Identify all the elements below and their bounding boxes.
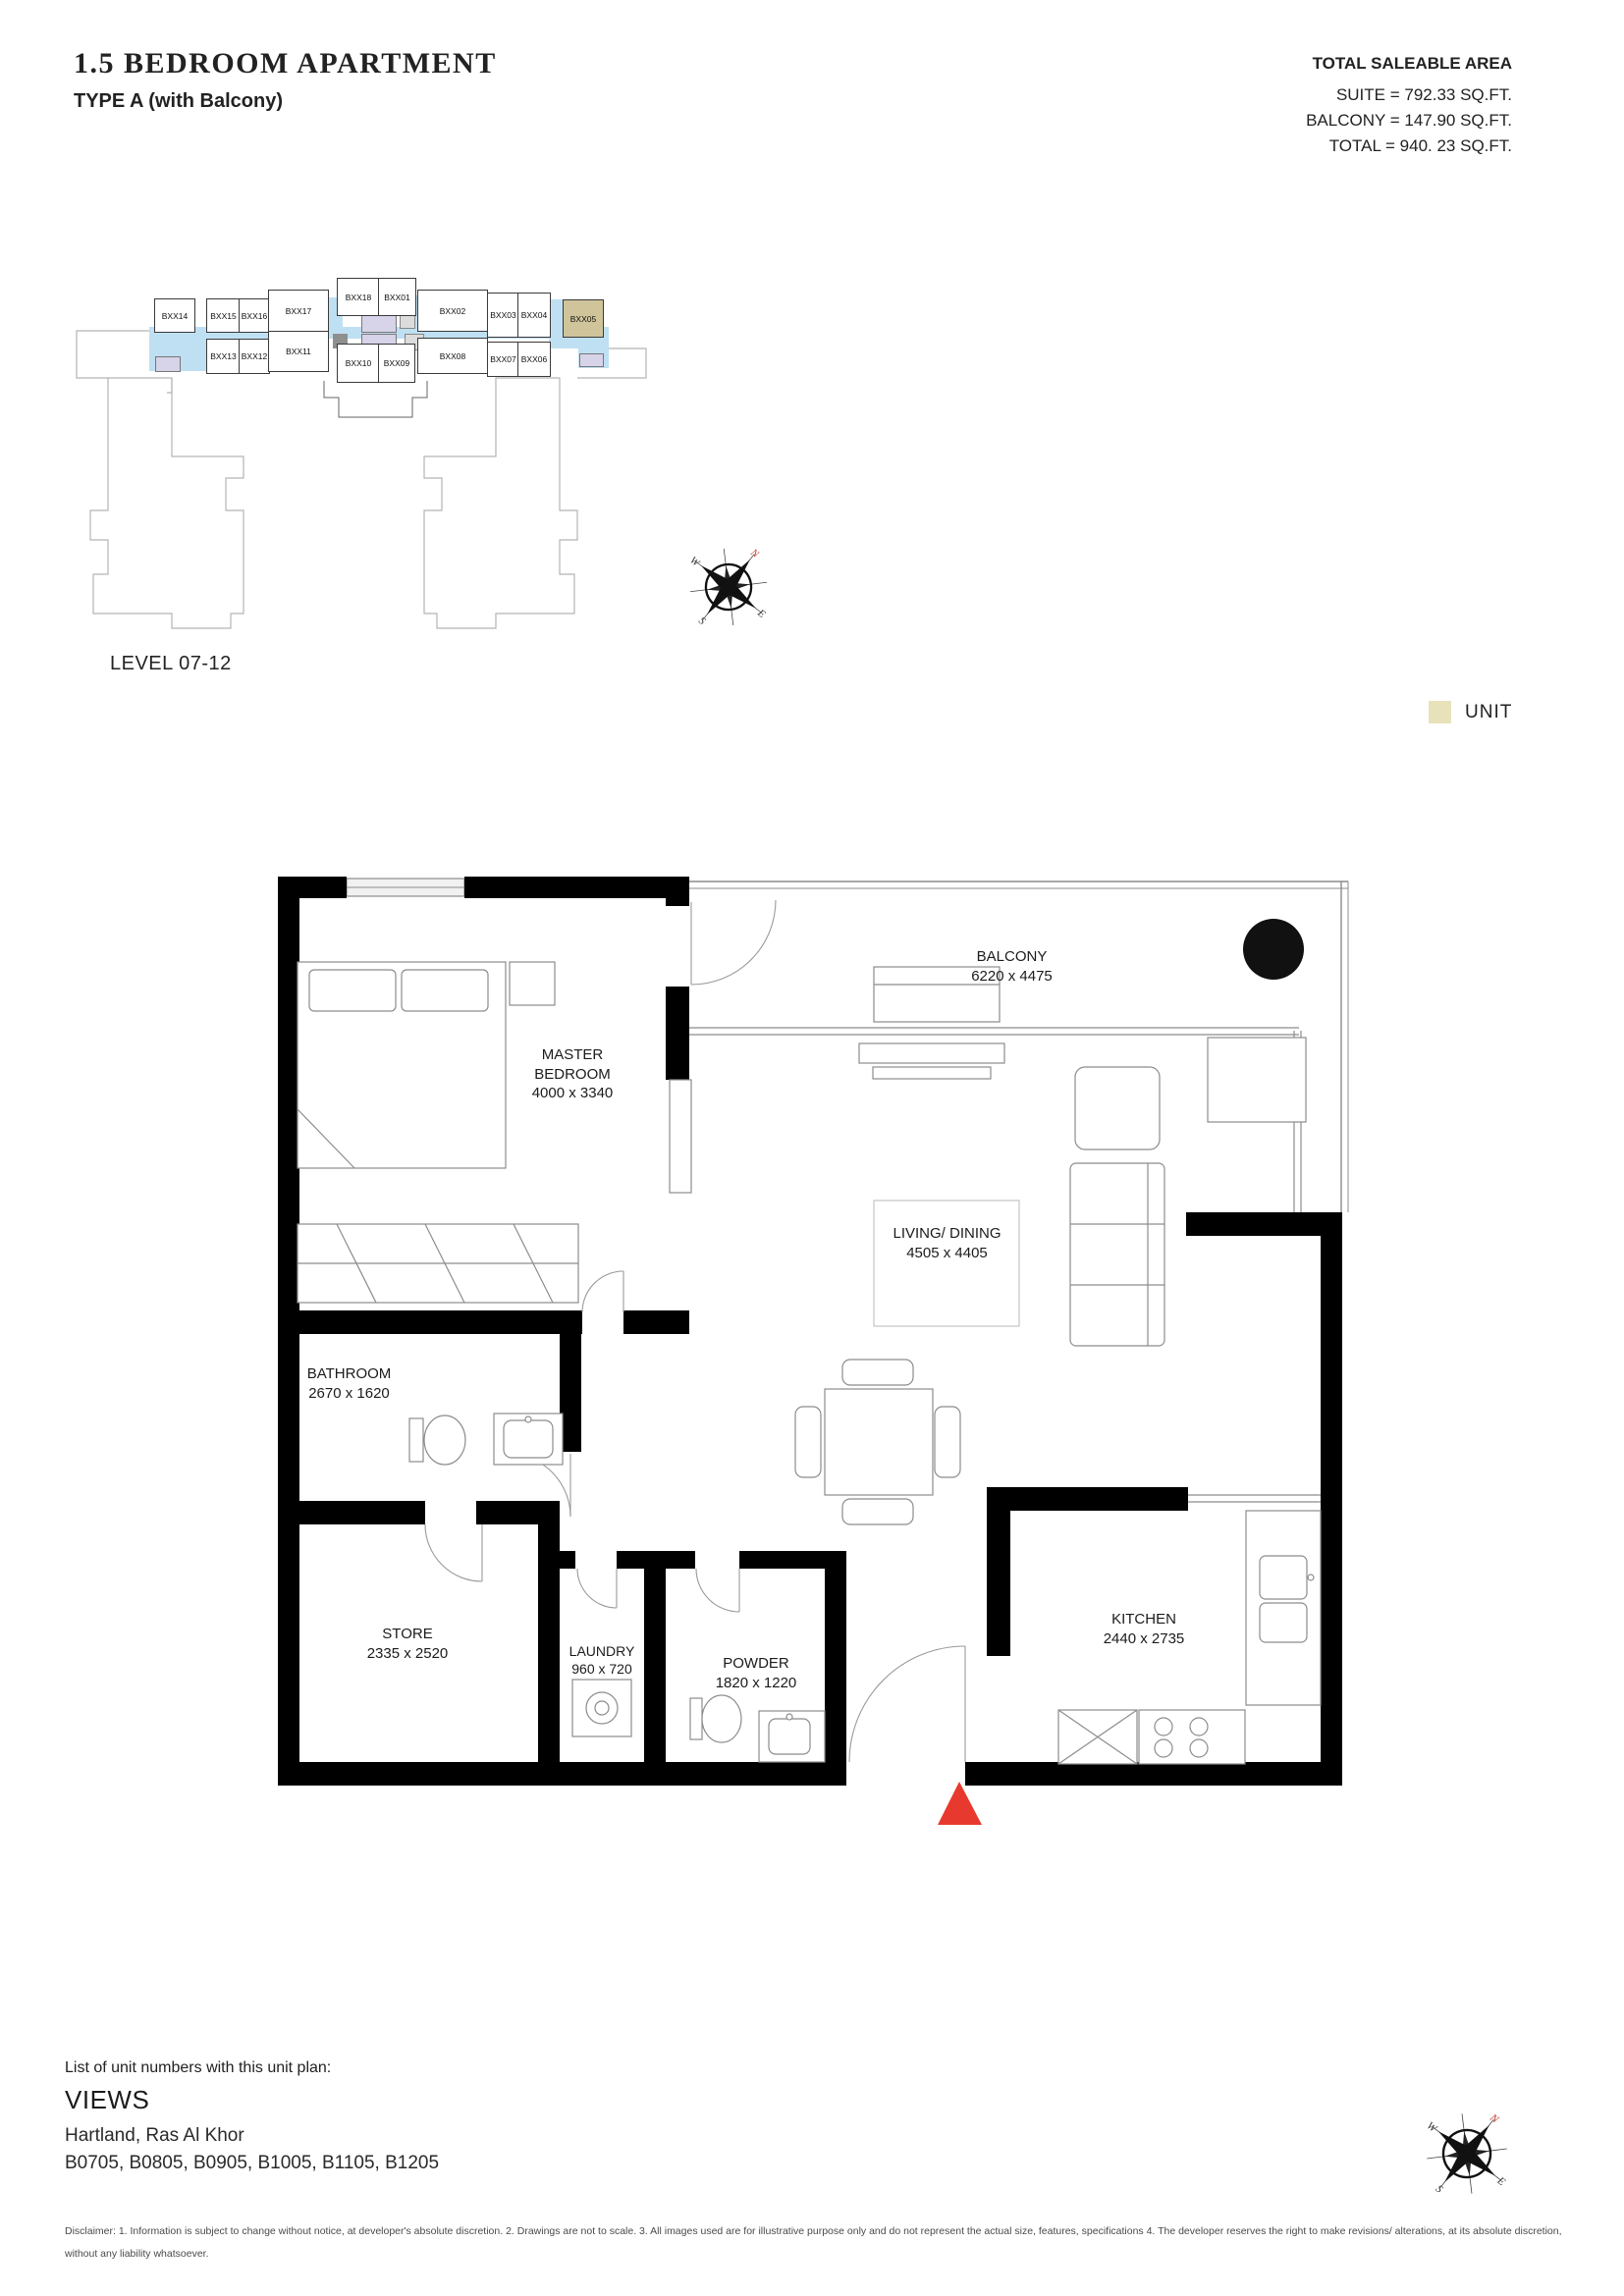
keyplan-unit: BXX14 (154, 298, 195, 333)
room-label-store: STORE2335 x 2520 (349, 1625, 466, 1663)
room-label-master: MASTER BEDROOM4000 x 3340 (509, 1045, 636, 1103)
tv-unit (859, 1043, 1004, 1079)
svg-text:S: S (696, 615, 708, 627)
keyplan-unit: BXX16 (239, 298, 270, 333)
armchair (1075, 1067, 1160, 1149)
room-label-kitchen: KITCHEN2440 x 2735 (1085, 1610, 1203, 1648)
area-balcony: BALCONY = 147.90 SQ.FT. (1306, 108, 1512, 133)
rug (874, 1201, 1019, 1326)
entrance-marker (938, 1782, 982, 1825)
key-plan: BXX18 BXX01 BXX14 BXX15 BXX16 BXX17 BXX0… (74, 275, 648, 667)
page-title: 1.5 BEDROOM APARTMENT (74, 47, 497, 80)
elevator-core (155, 356, 181, 372)
sofa (1070, 1163, 1164, 1346)
bathroom-sink (494, 1414, 563, 1465)
unit-legend: UNIT (1429, 701, 1512, 723)
level-label: LEVEL 07-12 (110, 653, 232, 675)
svg-text:W: W (1425, 2120, 1439, 2136)
svg-text:E: E (755, 608, 768, 621)
fridge (1058, 1710, 1137, 1764)
room-label-powder: POWDER1820 x 1220 (702, 1654, 810, 1692)
toilet (409, 1415, 465, 1465)
room-label-balcony: BALCONY6220 x 4475 (946, 947, 1078, 986)
room-label-living: LIVING/ DINING4505 x 4405 (881, 1224, 1013, 1262)
dining-table (795, 1360, 960, 1524)
balcony-table (1243, 919, 1304, 980)
stove (1139, 1710, 1245, 1764)
wall-niche (670, 1080, 691, 1193)
room-label-laundry: LAUNDRY960 x 720 (560, 1642, 644, 1678)
keyplan-unit: BXX09 (378, 344, 415, 383)
saleable-area-block: TOTAL SALEABLE AREA SUITE = 792.33 SQ.FT… (1306, 51, 1512, 159)
svg-text:N: N (1487, 2111, 1500, 2126)
svg-text:S: S (1434, 2183, 1445, 2196)
compass-icon-footer: N E S W (1418, 2105, 1516, 2203)
corridor-branch (549, 299, 563, 337)
floor-plan: MASTER BEDROOM4000 x 3340 BALCONY6220 x … (278, 869, 1358, 1831)
keyplan-unit: BXX11 (268, 331, 329, 372)
unit-list-intro: List of unit numbers with this unit plan… (65, 2059, 331, 2077)
keyplan-unit: BXX13 (206, 339, 241, 374)
keyplan-unit: BXX07 (487, 342, 519, 377)
page-header: 1.5 BEDROOM APARTMENT TYPE A (with Balco… (74, 47, 497, 113)
keyplan-unit: BXX15 (206, 298, 241, 333)
keyplan-unit: BXX02 (417, 290, 488, 332)
floor-plan-drawing (278, 869, 1358, 1831)
unit-legend-swatch (1429, 701, 1451, 723)
compass-icon: N E S W (681, 540, 776, 634)
disclaimer: Disclaimer: 1. Information is subject to… (65, 2220, 1565, 2266)
keyplan-unit: BXX03 (487, 293, 519, 338)
room-label-bathroom: BATHROOM2670 x 1620 (288, 1364, 410, 1403)
area-heading: TOTAL SALEABLE AREA (1306, 51, 1512, 77)
project-location: Hartland, Ras Al Khor (65, 2125, 244, 2147)
keyplan-unit: BXX08 (417, 338, 488, 374)
keyplan-unit: BXX04 (517, 293, 551, 338)
keyplan-unit: BXX17 (268, 290, 329, 333)
keyplan-unit: BXX12 (239, 339, 270, 374)
unit-numbers: B0705, B0805, B0905, B1005, B1105, B1205 (65, 2153, 439, 2174)
kitchen-counter (1246, 1511, 1321, 1705)
washing-machine (572, 1680, 631, 1736)
keyplan-unit: BXX06 (517, 342, 551, 377)
wardrobe (298, 1224, 578, 1303)
powder-sink (759, 1711, 825, 1762)
page-subtitle: TYPE A (with Balcony) (74, 90, 497, 113)
powder-toilet (690, 1695, 741, 1742)
project-name: VIEWS (65, 2085, 149, 2115)
keyplan-unit: BXX10 (337, 344, 380, 383)
svg-text:W: W (687, 555, 702, 569)
keyplan-unit: BXX01 (378, 278, 416, 316)
keyplan-unit: BXX18 (337, 278, 380, 316)
area-total: TOTAL = 940. 23 SQ.FT. (1306, 133, 1512, 159)
svg-text:N: N (747, 547, 761, 561)
nightstand (510, 962, 555, 1005)
elevator-core (579, 353, 604, 367)
keyplan-unit-highlighted: BXX05 (563, 299, 604, 338)
bed (298, 962, 506, 1168)
balcony-seat (1208, 1038, 1306, 1122)
area-suite: SUITE = 792.33 SQ.FT. (1306, 82, 1512, 108)
unit-legend-label: UNIT (1465, 702, 1512, 723)
